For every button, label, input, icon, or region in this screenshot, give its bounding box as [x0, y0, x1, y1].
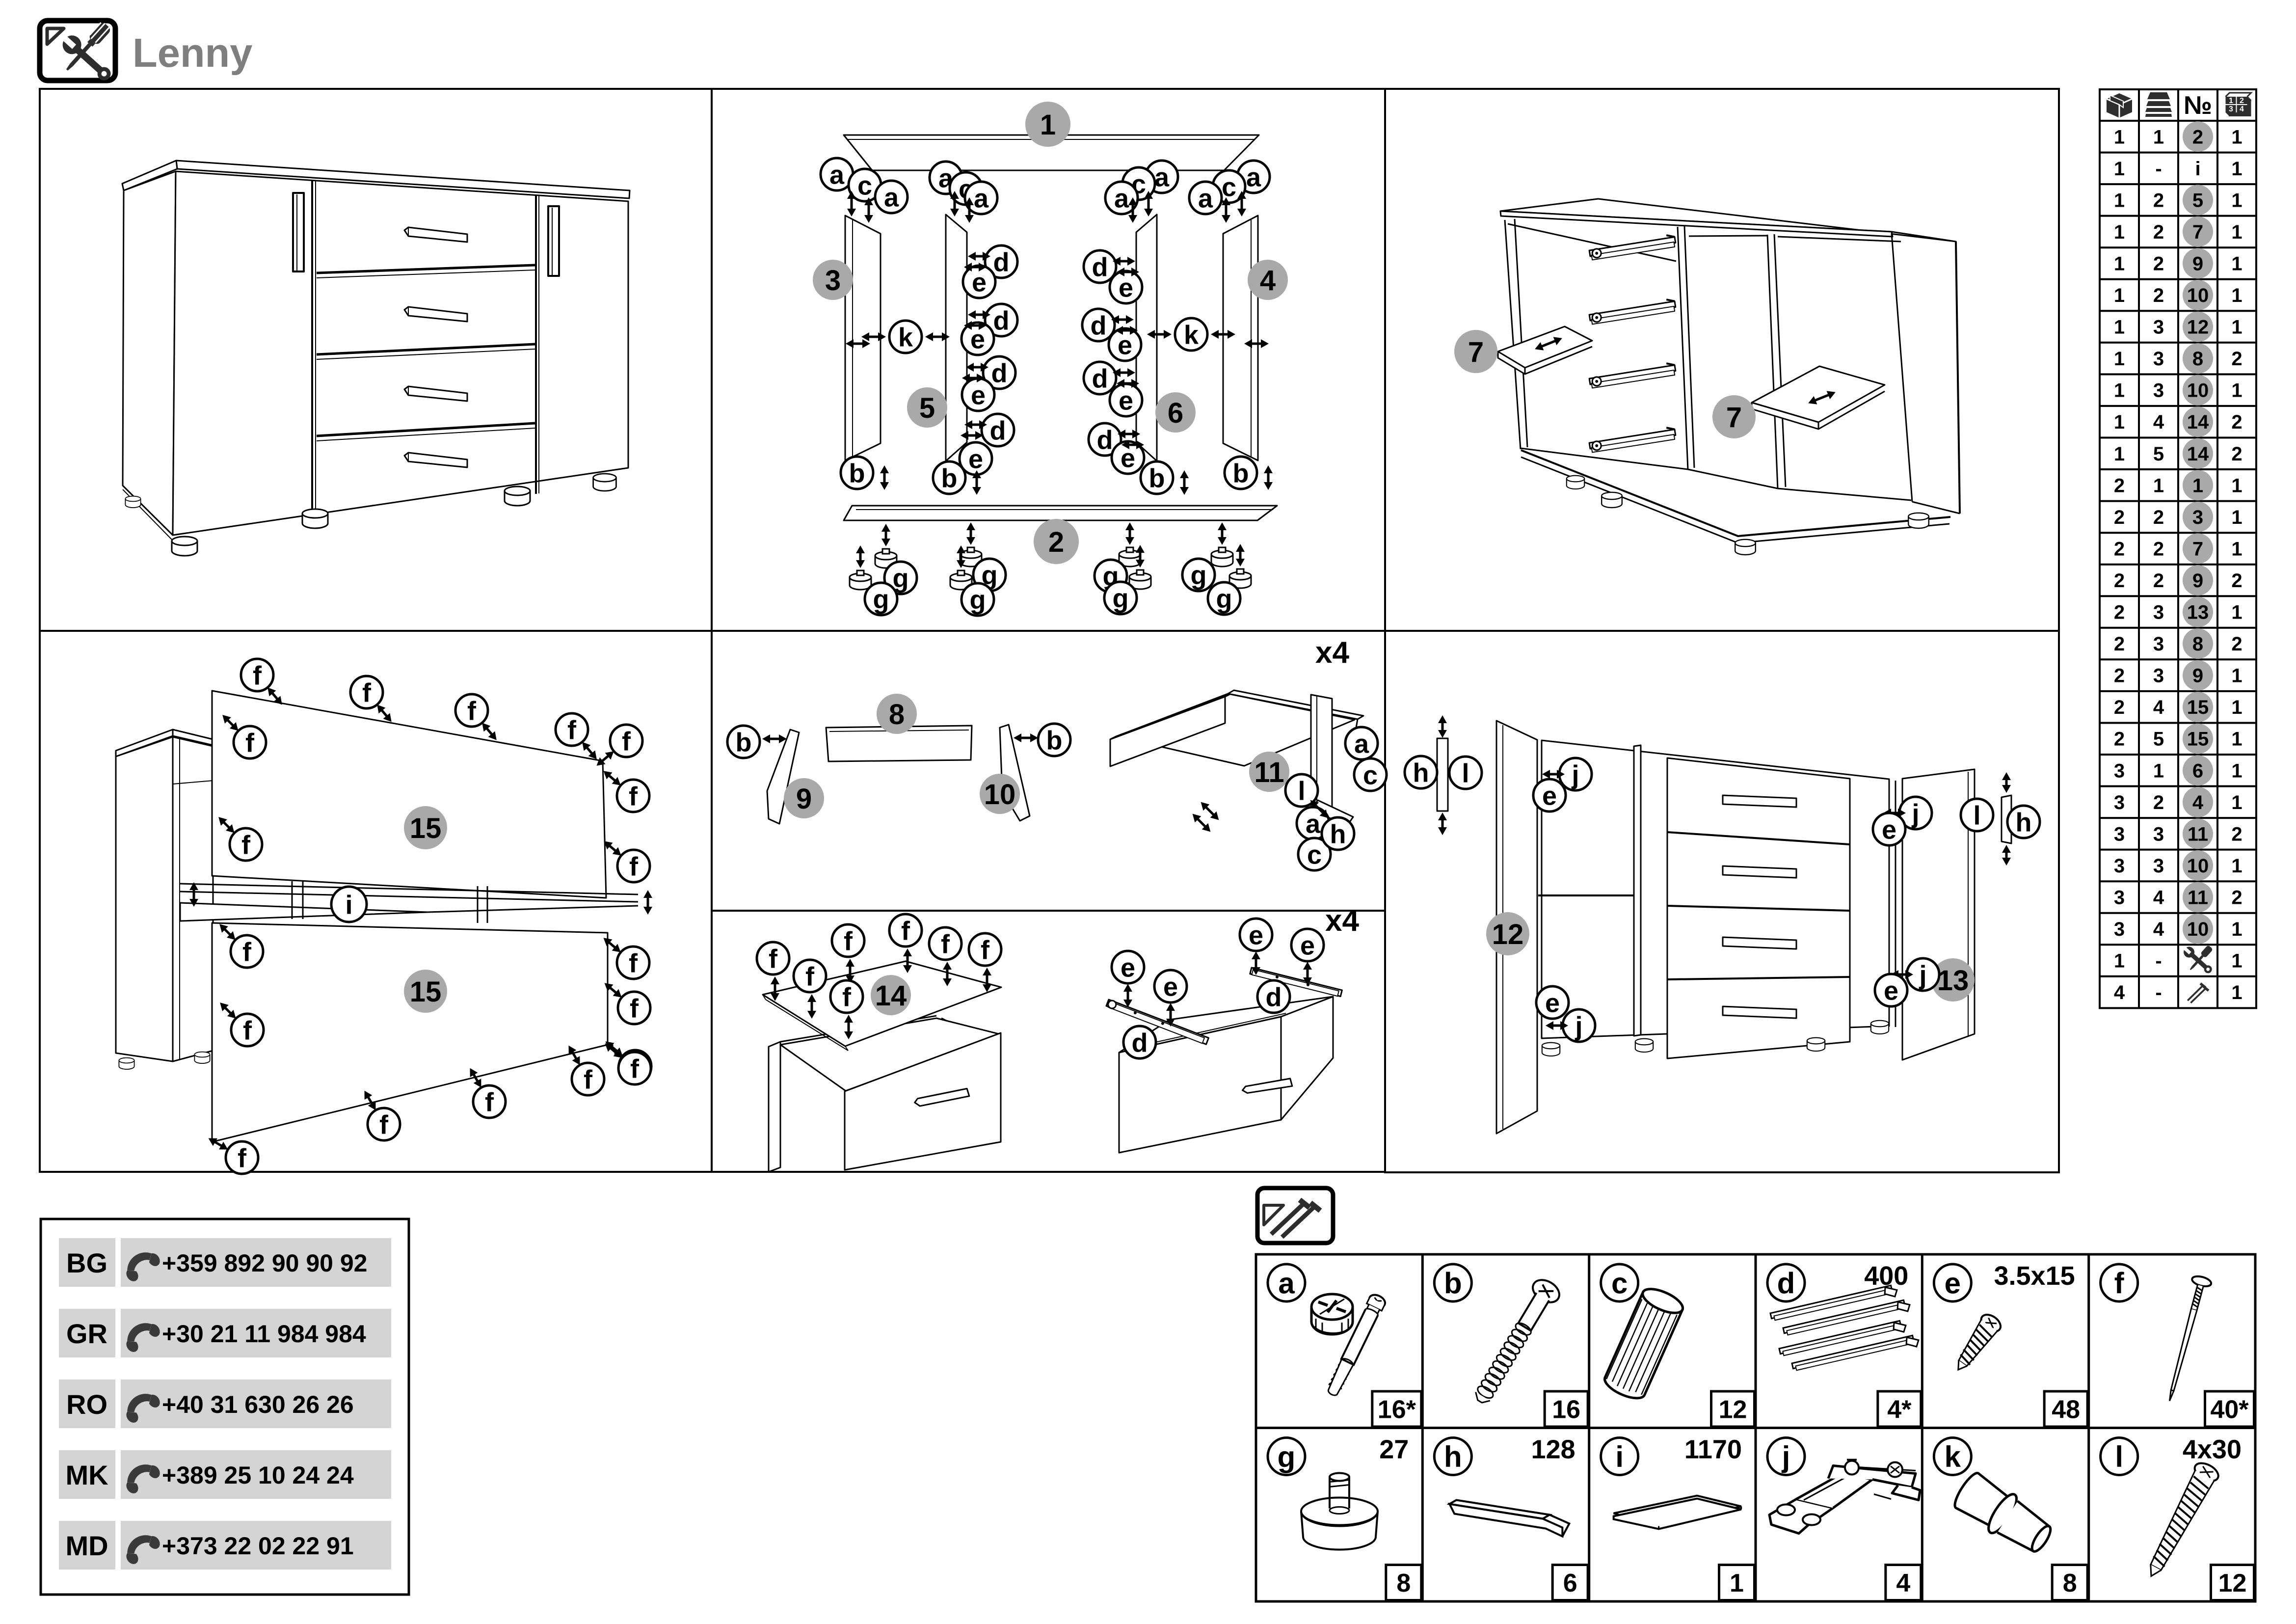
svg-text:a: a: [1278, 1267, 1295, 1300]
svg-text:10: 10: [2187, 855, 2209, 877]
svg-text:3: 3: [2114, 792, 2125, 813]
svg-text:f: f: [245, 728, 255, 758]
svg-text:d: d: [1097, 425, 1113, 455]
svg-text:5: 5: [919, 392, 935, 424]
svg-text:15: 15: [2187, 697, 2209, 718]
svg-text:16*: 16*: [1378, 1396, 1416, 1424]
svg-text:1: 1: [2231, 729, 2242, 750]
svg-text:f: f: [243, 1016, 252, 1045]
svg-text:f: f: [238, 1143, 247, 1173]
svg-text:1: 1: [2231, 760, 2242, 782]
svg-text:1: 1: [2231, 285, 2242, 306]
svg-text:1: 1: [2114, 950, 2125, 972]
svg-text:d: d: [993, 247, 1010, 277]
svg-text:9: 9: [2192, 570, 2203, 592]
svg-text:f: f: [253, 661, 262, 690]
svg-text:3: 3: [2114, 919, 2125, 940]
svg-text:j: j: [1782, 1440, 1790, 1473]
svg-text:e: e: [1542, 781, 1557, 811]
svg-text:6: 6: [1168, 397, 1183, 429]
svg-text:2: 2: [2192, 126, 2203, 148]
svg-text:12: 12: [2187, 317, 2209, 338]
svg-text:5: 5: [2153, 443, 2164, 465]
svg-text:8: 8: [889, 699, 905, 731]
svg-text:1: 1: [2153, 760, 2164, 782]
svg-text:13: 13: [2187, 602, 2209, 623]
svg-text:l: l: [2115, 1440, 2123, 1473]
svg-text:1: 1: [2114, 443, 2125, 465]
svg-text:f: f: [844, 926, 853, 956]
svg-text:f: f: [630, 1054, 640, 1083]
svg-text:e: e: [972, 268, 987, 297]
svg-text:x4: x4: [1325, 904, 1359, 938]
svg-text:b: b: [1233, 459, 1249, 488]
svg-text:2: 2: [2153, 253, 2164, 274]
svg-text:10: 10: [2187, 285, 2209, 306]
svg-text:4: 4: [1896, 1569, 1910, 1597]
svg-text:10: 10: [2187, 380, 2209, 402]
svg-text:MD: MD: [65, 1530, 108, 1561]
svg-text:a: a: [1306, 809, 1321, 839]
svg-text:i: i: [1615, 1440, 1624, 1473]
svg-text:2: 2: [2114, 570, 2125, 592]
svg-text:d: d: [1092, 252, 1108, 282]
svg-text:a: a: [829, 160, 845, 189]
svg-text:+30 21 11 984 984: +30 21 11 984 984: [162, 1320, 366, 1348]
svg-text:1: 1: [2114, 253, 2125, 274]
svg-text:f: f: [769, 944, 778, 974]
svg-text:b: b: [736, 728, 752, 757]
svg-text:2: 2: [2114, 475, 2125, 496]
svg-text:1: 1: [2114, 317, 2125, 338]
svg-text:f: f: [379, 1110, 389, 1139]
svg-text:2: 2: [2231, 443, 2242, 465]
svg-text:7: 7: [2192, 538, 2203, 560]
svg-text:3: 3: [2153, 380, 2164, 402]
svg-text:2: 2: [2153, 221, 2164, 243]
svg-text:1: 1: [1730, 1569, 1744, 1597]
svg-text:1: 1: [2231, 982, 2242, 1003]
svg-text:1: 1: [2114, 189, 2125, 211]
svg-text:3: 3: [825, 265, 841, 297]
svg-text:40*: 40*: [2210, 1396, 2249, 1424]
svg-text:1: 1: [2231, 221, 2242, 243]
svg-text:5: 5: [2153, 729, 2164, 750]
svg-text:2: 2: [2114, 633, 2125, 655]
svg-text:2: 2: [2114, 729, 2125, 750]
svg-text:15: 15: [2187, 729, 2209, 750]
svg-text:d: d: [1132, 1028, 1148, 1057]
svg-text:a: a: [1198, 184, 1213, 213]
svg-text:k: k: [1945, 1440, 1961, 1473]
svg-text:3: 3: [2153, 602, 2164, 623]
svg-text:2: 2: [2231, 570, 2242, 592]
svg-text:4: 4: [2114, 982, 2125, 1003]
svg-text:4: 4: [2153, 887, 2164, 908]
svg-text:48: 48: [2052, 1396, 2080, 1424]
svg-text:4x30: 4x30: [2183, 1435, 2242, 1464]
svg-text:14: 14: [2187, 443, 2209, 465]
svg-text:1: 1: [2192, 475, 2203, 496]
svg-text:g: g: [1278, 1440, 1296, 1473]
svg-text:12: 12: [1719, 1396, 1747, 1424]
svg-text:e: e: [1945, 1267, 1961, 1300]
svg-text:d: d: [993, 306, 1010, 335]
svg-text:e: e: [1118, 330, 1132, 360]
svg-text:1: 1: [2231, 697, 2242, 718]
svg-text:1: 1: [2114, 348, 2125, 370]
svg-text:1170: 1170: [1684, 1435, 1742, 1464]
svg-text:e: e: [1300, 931, 1315, 960]
svg-text:x4: x4: [1315, 636, 1349, 670]
svg-text:3: 3: [2153, 633, 2164, 655]
svg-text:7: 7: [1726, 402, 1742, 433]
svg-text:a: a: [1246, 162, 1261, 192]
svg-text:f: f: [584, 1065, 593, 1094]
svg-text:12: 12: [1492, 919, 1524, 950]
svg-text:+373 22 02 22 91: +373 22 02 22 91: [162, 1532, 354, 1560]
svg-text:c: c: [1222, 172, 1236, 202]
svg-text:1: 1: [2231, 253, 2242, 274]
svg-text:11: 11: [2188, 823, 2208, 845]
svg-text:d: d: [1266, 982, 1282, 1012]
svg-text:k: k: [1184, 320, 1199, 350]
svg-text:f: f: [362, 678, 372, 707]
svg-text:a: a: [974, 184, 989, 213]
svg-text:e: e: [1882, 815, 1896, 844]
svg-text:a: a: [1114, 184, 1129, 213]
svg-text:11: 11: [1254, 757, 1284, 788]
svg-text:b: b: [849, 459, 865, 488]
svg-text:j: j: [1571, 760, 1579, 789]
svg-text:j: j: [1919, 960, 1926, 990]
svg-text:2: 2: [2153, 538, 2164, 560]
svg-text:2: 2: [2231, 823, 2242, 845]
svg-text:2: 2: [2114, 697, 2125, 718]
svg-text:l: l: [1298, 776, 1305, 806]
svg-text:2: 2: [2231, 887, 2242, 908]
svg-text:2: 2: [2153, 507, 2164, 528]
svg-text:1: 1: [2231, 538, 2242, 560]
svg-text:8: 8: [2063, 1569, 2077, 1597]
svg-text:+359 892 90 90 92: +359 892 90 90 92: [162, 1249, 367, 1277]
svg-text:6: 6: [2192, 760, 2203, 782]
svg-text:2: 2: [2114, 538, 2125, 560]
svg-text:11: 11: [2188, 887, 2208, 908]
svg-text:8: 8: [2192, 348, 2203, 370]
svg-text:e: e: [970, 325, 985, 354]
svg-text:4: 4: [1260, 265, 1276, 297]
svg-text:f: f: [567, 715, 577, 745]
svg-text:128: 128: [1531, 1435, 1575, 1464]
svg-text:f: f: [629, 948, 638, 978]
svg-text:2: 2: [2231, 348, 2242, 370]
svg-text:2: 2: [2231, 633, 2242, 655]
svg-text:e: e: [1545, 988, 1560, 1018]
svg-text:BG: BG: [66, 1247, 107, 1278]
svg-text:h: h: [1444, 1440, 1462, 1473]
svg-text:8: 8: [2192, 633, 2203, 655]
svg-text:e: e: [971, 380, 986, 410]
svg-text:f: f: [242, 937, 252, 967]
svg-text:c: c: [1307, 840, 1322, 869]
svg-text:3: 3: [2229, 105, 2233, 113]
svg-text:e: e: [1119, 386, 1133, 415]
svg-text:a: a: [884, 183, 899, 212]
svg-text:14: 14: [875, 980, 907, 1012]
svg-text:h: h: [1413, 758, 1429, 787]
svg-text:i: i: [345, 890, 352, 920]
svg-text:3: 3: [2153, 665, 2164, 687]
svg-text:c: c: [857, 171, 872, 200]
svg-text:2: 2: [2114, 602, 2125, 623]
svg-text:1: 1: [2231, 792, 2242, 813]
svg-text:2: 2: [2114, 665, 2125, 687]
svg-text:1: 1: [2231, 919, 2242, 940]
svg-text:1: 1: [2231, 507, 2242, 528]
svg-text:+389 25 10 24 24: +389 25 10 24 24: [162, 1462, 354, 1489]
svg-text:15: 15: [410, 812, 442, 844]
svg-text:9: 9: [796, 783, 812, 815]
svg-text:1: 1: [2114, 380, 2125, 402]
svg-text:e: e: [1163, 972, 1178, 1001]
svg-text:f: f: [805, 962, 815, 991]
svg-text:i: i: [2195, 158, 2200, 180]
svg-text:14: 14: [2187, 411, 2209, 433]
svg-text:a: a: [1154, 162, 1170, 192]
svg-text:f: f: [2114, 1267, 2125, 1300]
svg-text:15: 15: [410, 976, 442, 1008]
svg-text:2: 2: [2153, 285, 2164, 306]
svg-text:g: g: [1216, 584, 1232, 614]
svg-text:3: 3: [2114, 760, 2125, 782]
svg-text:3: 3: [2153, 823, 2164, 845]
svg-text:GR: GR: [66, 1318, 107, 1349]
svg-text:f: f: [485, 1087, 494, 1117]
svg-text:3: 3: [2153, 317, 2164, 338]
svg-text:5: 5: [2192, 189, 2203, 211]
svg-text:1: 1: [1040, 109, 1056, 141]
svg-text:3: 3: [2114, 887, 2125, 908]
svg-text:e: e: [1249, 920, 1263, 950]
svg-text:3: 3: [2192, 507, 2203, 528]
svg-text:9: 9: [2192, 253, 2203, 274]
svg-text:l: l: [1462, 758, 1469, 788]
svg-text:-: -: [2155, 158, 2162, 180]
svg-text:g: g: [873, 585, 889, 614]
svg-text:f: f: [629, 852, 639, 881]
svg-text:2: 2: [1048, 526, 1064, 558]
svg-text:+40 31 630 26 26: +40 31 630 26 26: [162, 1391, 354, 1418]
svg-text:b: b: [1444, 1267, 1462, 1300]
svg-text:f: f: [630, 994, 639, 1023]
svg-text:1: 1: [2114, 158, 2125, 180]
svg-text:1: 1: [2231, 317, 2242, 338]
svg-text:1: 1: [2231, 602, 2242, 623]
svg-text:f: f: [629, 782, 638, 811]
svg-text:RO: RO: [66, 1389, 107, 1420]
svg-text:e: e: [1121, 953, 1135, 982]
svg-text:d: d: [1091, 311, 1107, 340]
svg-text:f: f: [241, 830, 251, 860]
svg-text:4: 4: [2153, 697, 2164, 718]
svg-text:10: 10: [984, 779, 1016, 811]
svg-text:k: k: [898, 323, 913, 352]
svg-text:b: b: [1149, 463, 1165, 493]
svg-text:4: 4: [2153, 411, 2164, 433]
svg-text:-: -: [2155, 950, 2162, 972]
svg-text:1: 1: [2114, 411, 2125, 433]
svg-text:3: 3: [2114, 855, 2125, 877]
svg-text:g: g: [970, 585, 986, 615]
svg-text:h: h: [2016, 808, 2032, 837]
svg-text:e: e: [968, 444, 983, 474]
svg-text:b: b: [1046, 726, 1063, 755]
svg-text:1: 1: [2114, 285, 2125, 306]
svg-text:12: 12: [2218, 1569, 2247, 1597]
svg-text:4*: 4*: [1887, 1396, 1912, 1424]
svg-text:27: 27: [1379, 1435, 1409, 1464]
svg-text:1: 1: [2231, 126, 2242, 148]
svg-text:e: e: [1884, 976, 1898, 1005]
svg-text:3: 3: [2114, 823, 2125, 845]
svg-text:l: l: [1973, 801, 1980, 830]
svg-text:1: 1: [2231, 189, 2242, 211]
svg-text:3.5x15: 3.5x15: [1994, 1261, 2075, 1291]
svg-text:1: 1: [2231, 380, 2242, 402]
svg-text:2: 2: [2153, 189, 2164, 211]
svg-text:3: 3: [2153, 855, 2164, 877]
svg-text:f: f: [467, 696, 477, 726]
svg-text:d: d: [1092, 364, 1108, 393]
svg-text:2: 2: [2153, 570, 2164, 592]
svg-text:f: f: [981, 935, 990, 965]
svg-text:1: 1: [2153, 126, 2164, 148]
svg-text:2: 2: [2114, 507, 2125, 528]
svg-text:2: 2: [2240, 97, 2244, 105]
svg-text:e: e: [1119, 273, 1133, 302]
svg-text:2: 2: [2231, 411, 2242, 433]
svg-text:d: d: [991, 358, 1008, 388]
svg-text:13: 13: [1937, 965, 1969, 997]
svg-text:7: 7: [2192, 221, 2203, 243]
svg-text:b: b: [941, 463, 958, 493]
svg-text:7: 7: [1468, 336, 1484, 368]
svg-text:1: 1: [2231, 950, 2242, 972]
svg-text:g: g: [1113, 584, 1129, 613]
svg-text:1: 1: [2229, 97, 2233, 105]
svg-text:8: 8: [1396, 1569, 1411, 1597]
svg-text:1: 1: [2231, 475, 2242, 496]
svg-text:d: d: [990, 416, 1006, 445]
svg-text:4: 4: [2192, 792, 2204, 813]
svg-text:Lenny: Lenny: [133, 30, 252, 76]
svg-text:f: f: [941, 929, 950, 959]
svg-text:c: c: [1611, 1267, 1628, 1300]
svg-text:10: 10: [2187, 919, 2209, 940]
svg-text:j: j: [1575, 1011, 1582, 1041]
svg-text:-: -: [2155, 982, 2162, 1003]
svg-text:1: 1: [2153, 475, 2164, 496]
svg-text:1: 1: [2231, 158, 2242, 180]
svg-text:MK: MK: [65, 1460, 108, 1490]
svg-text:1: 1: [2114, 126, 2125, 148]
svg-text:№: №: [2184, 91, 2212, 120]
svg-text:h: h: [1330, 819, 1346, 849]
svg-text:j: j: [1911, 799, 1919, 828]
svg-text:1: 1: [2114, 221, 2125, 243]
svg-text:f: f: [622, 727, 631, 756]
svg-text:4: 4: [2153, 919, 2164, 940]
svg-text:4: 4: [2240, 105, 2244, 113]
svg-text:c: c: [1363, 760, 1378, 790]
svg-text:a: a: [1354, 729, 1369, 758]
svg-text:16: 16: [1552, 1396, 1580, 1424]
svg-text:1: 1: [2231, 855, 2242, 877]
svg-text:6: 6: [1563, 1569, 1577, 1597]
svg-text:1: 1: [2231, 665, 2242, 687]
svg-text:f: f: [901, 916, 910, 946]
svg-text:f: f: [842, 982, 852, 1012]
svg-text:9: 9: [2192, 665, 2203, 687]
svg-text:d: d: [1777, 1267, 1795, 1300]
svg-text:g: g: [1191, 561, 1207, 590]
svg-text:2: 2: [2153, 792, 2164, 813]
svg-text:3: 3: [2153, 348, 2164, 370]
